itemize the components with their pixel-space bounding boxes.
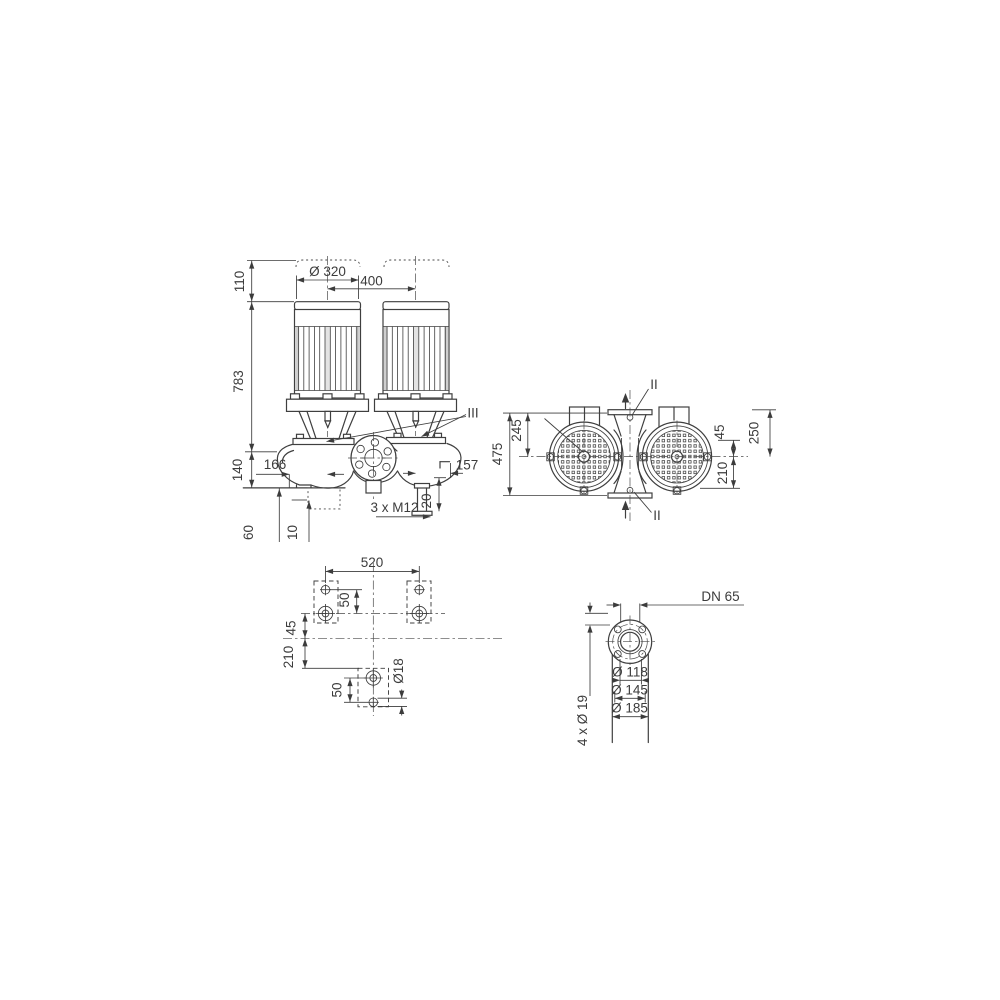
dim-total-height: 783 bbox=[231, 370, 246, 393]
technical-drawing-page: Ø 320 400 110 783 140 166 bbox=[0, 0, 1000, 1000]
dim-raised-face: Ø 145 bbox=[611, 683, 648, 698]
dim-base-to-axis: 140 bbox=[230, 459, 245, 482]
vent-plug-right bbox=[413, 411, 419, 421]
motor-flange-plate-left bbox=[287, 399, 369, 411]
motor-flange-plate-right bbox=[375, 399, 457, 411]
dim-axis-to-bottom-flange: 210 bbox=[715, 462, 730, 485]
dim-hole-diameter: Ø18 bbox=[391, 658, 406, 684]
dim-motor-diameter: Ø 320 bbox=[309, 264, 346, 279]
dim-anchor-bolts: 3 x M12 bbox=[370, 500, 418, 515]
dim-pad-height: 60 bbox=[241, 525, 256, 540]
flange-tab bbox=[366, 481, 381, 494]
dim-motor-spacing: 400 bbox=[360, 274, 383, 289]
dim-motor-clearance: 110 bbox=[232, 271, 247, 293]
dim-foot-offset: 20 bbox=[419, 493, 434, 508]
page-background bbox=[0, 0, 1000, 1000]
dim-pad-thickness: 10 bbox=[285, 525, 300, 540]
motor-right bbox=[375, 302, 457, 412]
motor-left bbox=[287, 302, 369, 412]
dim-axis-offset-a: 45 bbox=[284, 620, 299, 635]
dim-nominal-diameter: DN 65 bbox=[701, 589, 739, 604]
vent-plug-left bbox=[325, 411, 331, 421]
dim-bolt-circle: Ø 118 bbox=[612, 665, 648, 680]
dim-outer-diameter: Ø 185 bbox=[611, 701, 648, 716]
support-foot-block bbox=[415, 484, 430, 489]
dim-axis-offset-b: 210 bbox=[281, 646, 296, 669]
dim-overall-depth: 475 bbox=[490, 443, 505, 466]
drawing-canvas: Ø 320 400 110 783 140 166 bbox=[0, 0, 1000, 1000]
section-label-top: II bbox=[650, 377, 658, 392]
dim-bolt-spacing: 520 bbox=[361, 555, 384, 570]
dim-motor-face-to-axis: 250 bbox=[747, 422, 762, 445]
dim-bolt-holes: 4 x Ø 19 bbox=[575, 695, 590, 746]
dim-hole-pitch-bottom: 50 bbox=[330, 682, 345, 697]
dim-offset-right: 157 bbox=[456, 458, 479, 473]
section-label-bottom: II bbox=[653, 508, 661, 523]
dim-hole-pitch-top: 50 bbox=[337, 592, 352, 607]
dim-offset-left: 166 bbox=[264, 457, 287, 472]
detail-label-III: III bbox=[467, 406, 478, 421]
dim-port-offset: 45 bbox=[712, 424, 727, 439]
dim-axis-to-top-edge: 245 bbox=[509, 419, 524, 442]
